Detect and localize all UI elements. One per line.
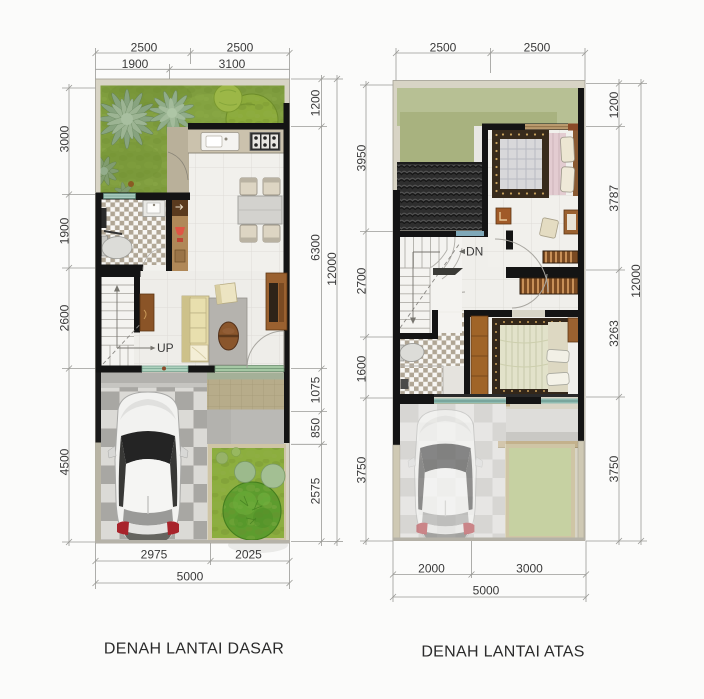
svg-text:5000: 5000 [473, 584, 500, 598]
svg-text:3000: 3000 [58, 125, 72, 152]
svg-text:12000: 12000 [325, 252, 339, 286]
svg-text:3750: 3750 [607, 455, 621, 482]
svg-text:1900: 1900 [122, 57, 149, 71]
svg-text:6300: 6300 [309, 234, 323, 261]
svg-text:3950: 3950 [355, 144, 369, 171]
svg-text:1200: 1200 [607, 91, 621, 118]
svg-text:UP: UP [157, 341, 174, 355]
svg-text:12000: 12000 [629, 264, 643, 298]
svg-text:3100: 3100 [219, 57, 246, 71]
svg-text:3263: 3263 [607, 320, 621, 347]
svg-text:5000: 5000 [177, 570, 204, 584]
svg-text:2500: 2500 [227, 41, 254, 55]
svg-text:1200: 1200 [309, 89, 323, 116]
svg-text:DENAH LANTAI DASAR: DENAH LANTAI DASAR [104, 641, 284, 658]
svg-text:DENAH LANTAI ATAS: DENAH LANTAI ATAS [421, 644, 584, 661]
svg-text:2600: 2600 [58, 304, 72, 331]
svg-text:DN: DN [466, 245, 483, 259]
svg-text:2575: 2575 [309, 477, 323, 504]
svg-text:850: 850 [309, 418, 323, 438]
svg-text:2700: 2700 [355, 267, 369, 294]
svg-text:1075: 1075 [309, 376, 323, 403]
svg-text:2025: 2025 [235, 548, 262, 562]
svg-text:2000: 2000 [418, 562, 445, 576]
svg-text:3000: 3000 [516, 562, 543, 576]
svg-text:2975: 2975 [141, 548, 168, 562]
svg-text:4500: 4500 [58, 448, 72, 475]
svg-text:2500: 2500 [131, 41, 158, 55]
svg-text:3787: 3787 [607, 185, 621, 212]
svg-text:2500: 2500 [430, 41, 457, 55]
svg-text:3750: 3750 [355, 456, 369, 483]
svg-text:1600: 1600 [355, 355, 369, 382]
svg-text:1900: 1900 [58, 217, 72, 244]
svg-text:2500: 2500 [524, 41, 551, 55]
